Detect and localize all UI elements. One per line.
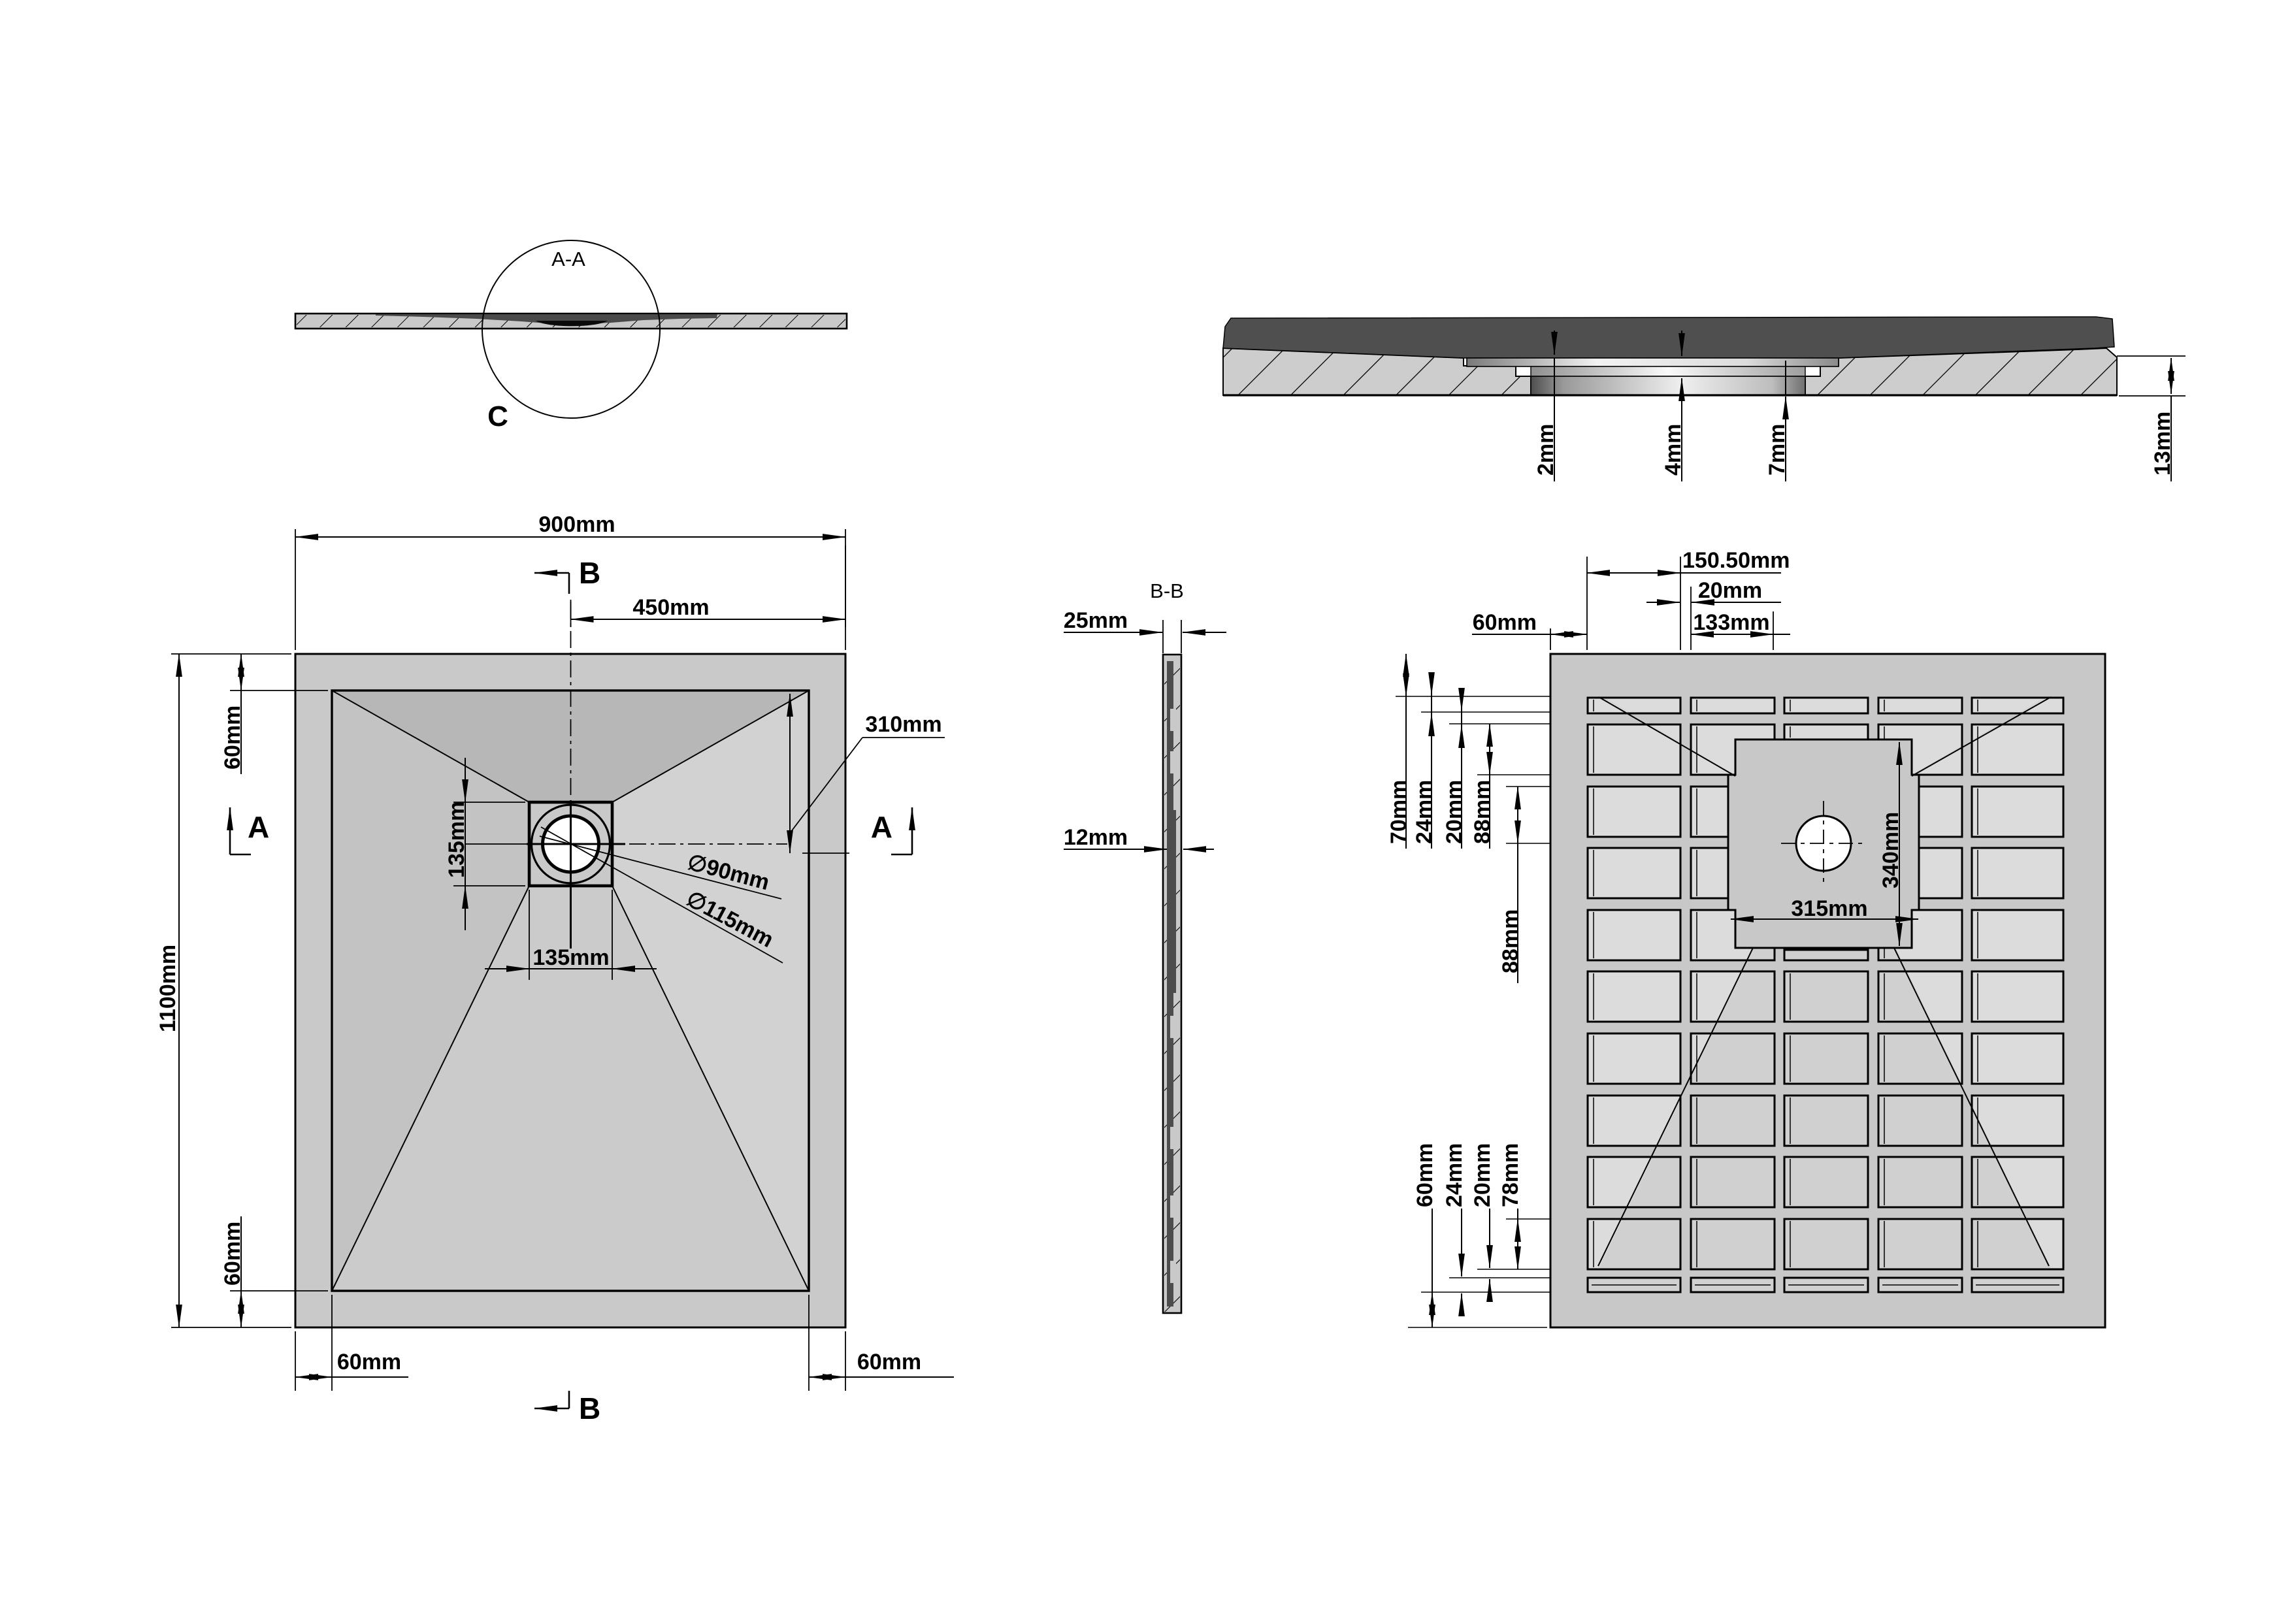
svg-text:A: A: [248, 810, 269, 844]
svg-text:340mm: 340mm: [1878, 812, 1903, 888]
svg-text:20mm: 20mm: [1470, 1143, 1495, 1207]
svg-text:4mm: 4mm: [1661, 424, 1686, 476]
svg-text:A-A: A-A: [551, 248, 585, 270]
svg-text:60mm: 60mm: [1473, 610, 1537, 635]
svg-text:20mm: 20mm: [1442, 780, 1467, 844]
svg-text:135mm: 135mm: [532, 945, 609, 970]
svg-text:B: B: [579, 556, 600, 590]
svg-text:B: B: [579, 1391, 600, 1425]
svg-text:450mm: 450mm: [632, 595, 709, 620]
svg-text:310mm: 310mm: [865, 712, 941, 737]
svg-text:C: C: [487, 400, 508, 432]
svg-text:135mm: 135mm: [444, 802, 469, 878]
svg-text:7mm: 7mm: [1765, 424, 1790, 476]
svg-text:25mm: 25mm: [1064, 608, 1128, 633]
svg-text:78mm: 78mm: [1498, 1143, 1523, 1207]
svg-text:13mm: 13mm: [2150, 412, 2175, 476]
svg-text:60mm: 60mm: [220, 1222, 245, 1286]
svg-text:12mm: 12mm: [1064, 825, 1128, 850]
svg-text:2mm: 2mm: [1533, 424, 1558, 476]
svg-text:60mm: 60mm: [337, 1350, 401, 1374]
svg-text:88mm: 88mm: [1470, 780, 1495, 844]
svg-text:B-B: B-B: [1150, 579, 1184, 602]
svg-text:88mm: 88mm: [1498, 909, 1523, 973]
svg-text:A: A: [871, 810, 892, 844]
svg-text:20mm: 20mm: [1698, 578, 1762, 603]
svg-text:70mm: 70mm: [1386, 780, 1411, 844]
svg-text:60mm: 60mm: [1413, 1143, 1437, 1207]
svg-text:315mm: 315mm: [1791, 896, 1867, 921]
svg-text:1100mm: 1100mm: [156, 945, 180, 1032]
svg-text:24mm: 24mm: [1412, 780, 1437, 844]
svg-text:60mm: 60mm: [220, 706, 245, 770]
svg-text:900mm: 900mm: [538, 512, 615, 537]
svg-text:60mm: 60mm: [857, 1350, 921, 1374]
svg-text:24mm: 24mm: [1442, 1143, 1467, 1207]
svg-text:133mm: 133mm: [1693, 610, 1769, 635]
svg-text:150.50mm: 150.50mm: [1682, 548, 1790, 573]
